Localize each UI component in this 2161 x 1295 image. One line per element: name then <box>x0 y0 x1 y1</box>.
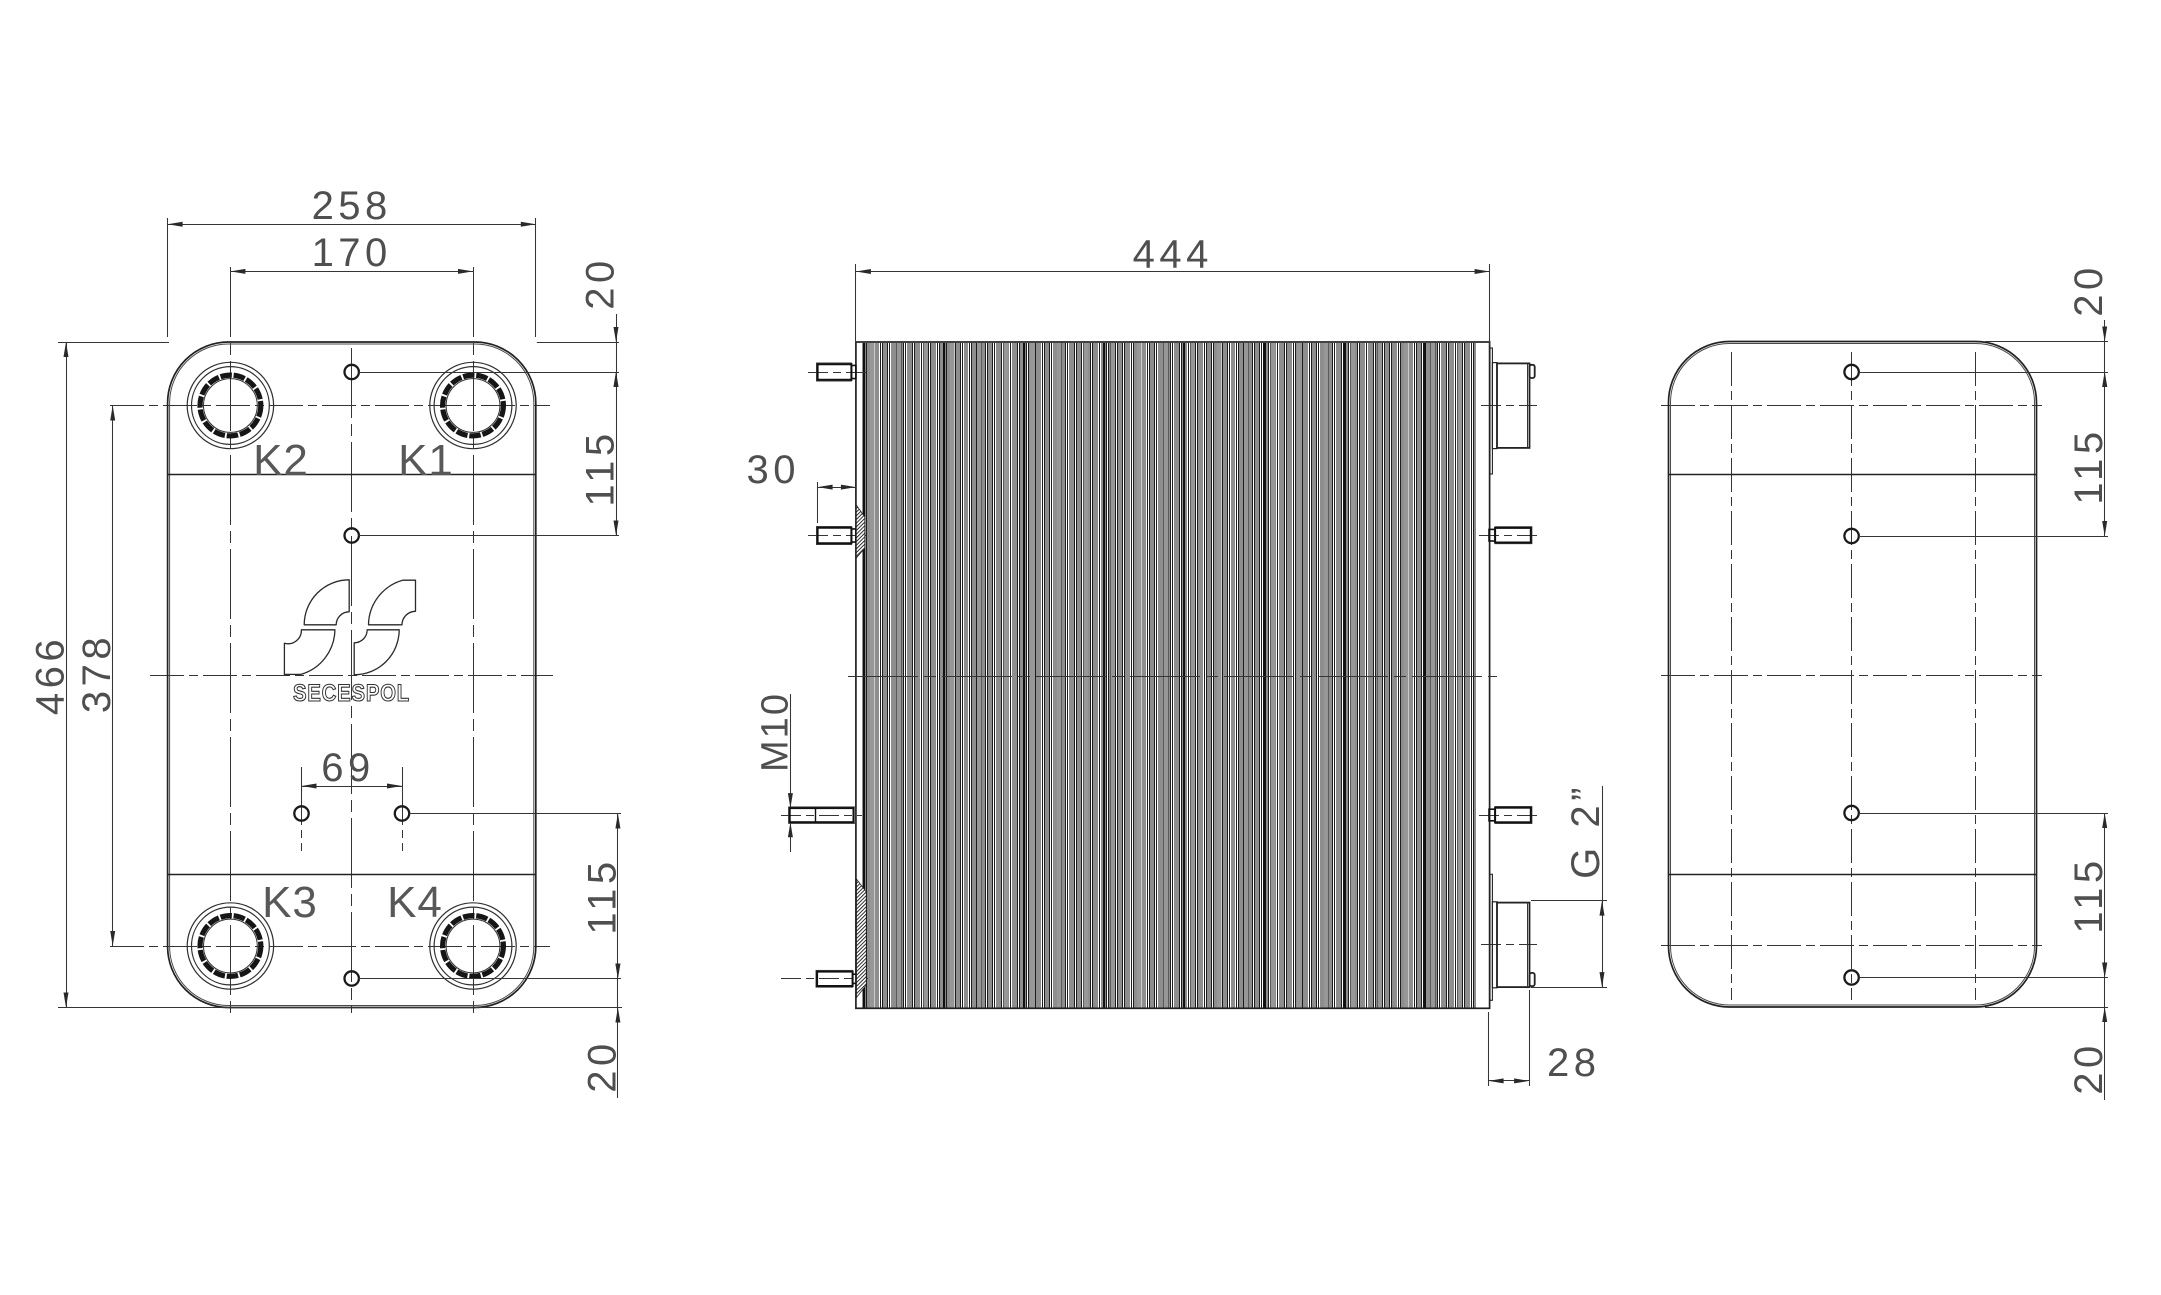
svg-text:115: 115 <box>579 429 623 506</box>
svg-text:K1: K1 <box>398 436 454 485</box>
svg-text:20: 20 <box>580 1039 624 1093</box>
svg-text:SECESPOL: SECESPOL <box>293 680 410 707</box>
svg-text:115: 115 <box>2067 427 2111 504</box>
svg-text:444: 444 <box>1133 233 1213 277</box>
svg-text:466: 466 <box>29 635 73 715</box>
svg-text:258: 258 <box>312 184 392 228</box>
svg-text:K2: K2 <box>253 436 309 485</box>
svg-text:G 2”: G 2” <box>1564 783 1608 879</box>
svg-text:20: 20 <box>579 256 623 310</box>
svg-text:378: 378 <box>75 633 119 713</box>
svg-text:20: 20 <box>2067 263 2111 317</box>
svg-text:20: 20 <box>2067 1041 2111 1095</box>
svg-text:115: 115 <box>580 857 624 934</box>
svg-text:115: 115 <box>2067 856 2111 933</box>
svg-text:K4: K4 <box>387 878 443 927</box>
svg-text:M10: M10 <box>755 692 797 772</box>
svg-text:K3: K3 <box>262 878 318 927</box>
svg-text:170: 170 <box>312 231 392 275</box>
svg-text:69: 69 <box>321 746 375 790</box>
svg-text:30: 30 <box>747 448 801 492</box>
svg-text:28: 28 <box>1547 1041 1601 1085</box>
